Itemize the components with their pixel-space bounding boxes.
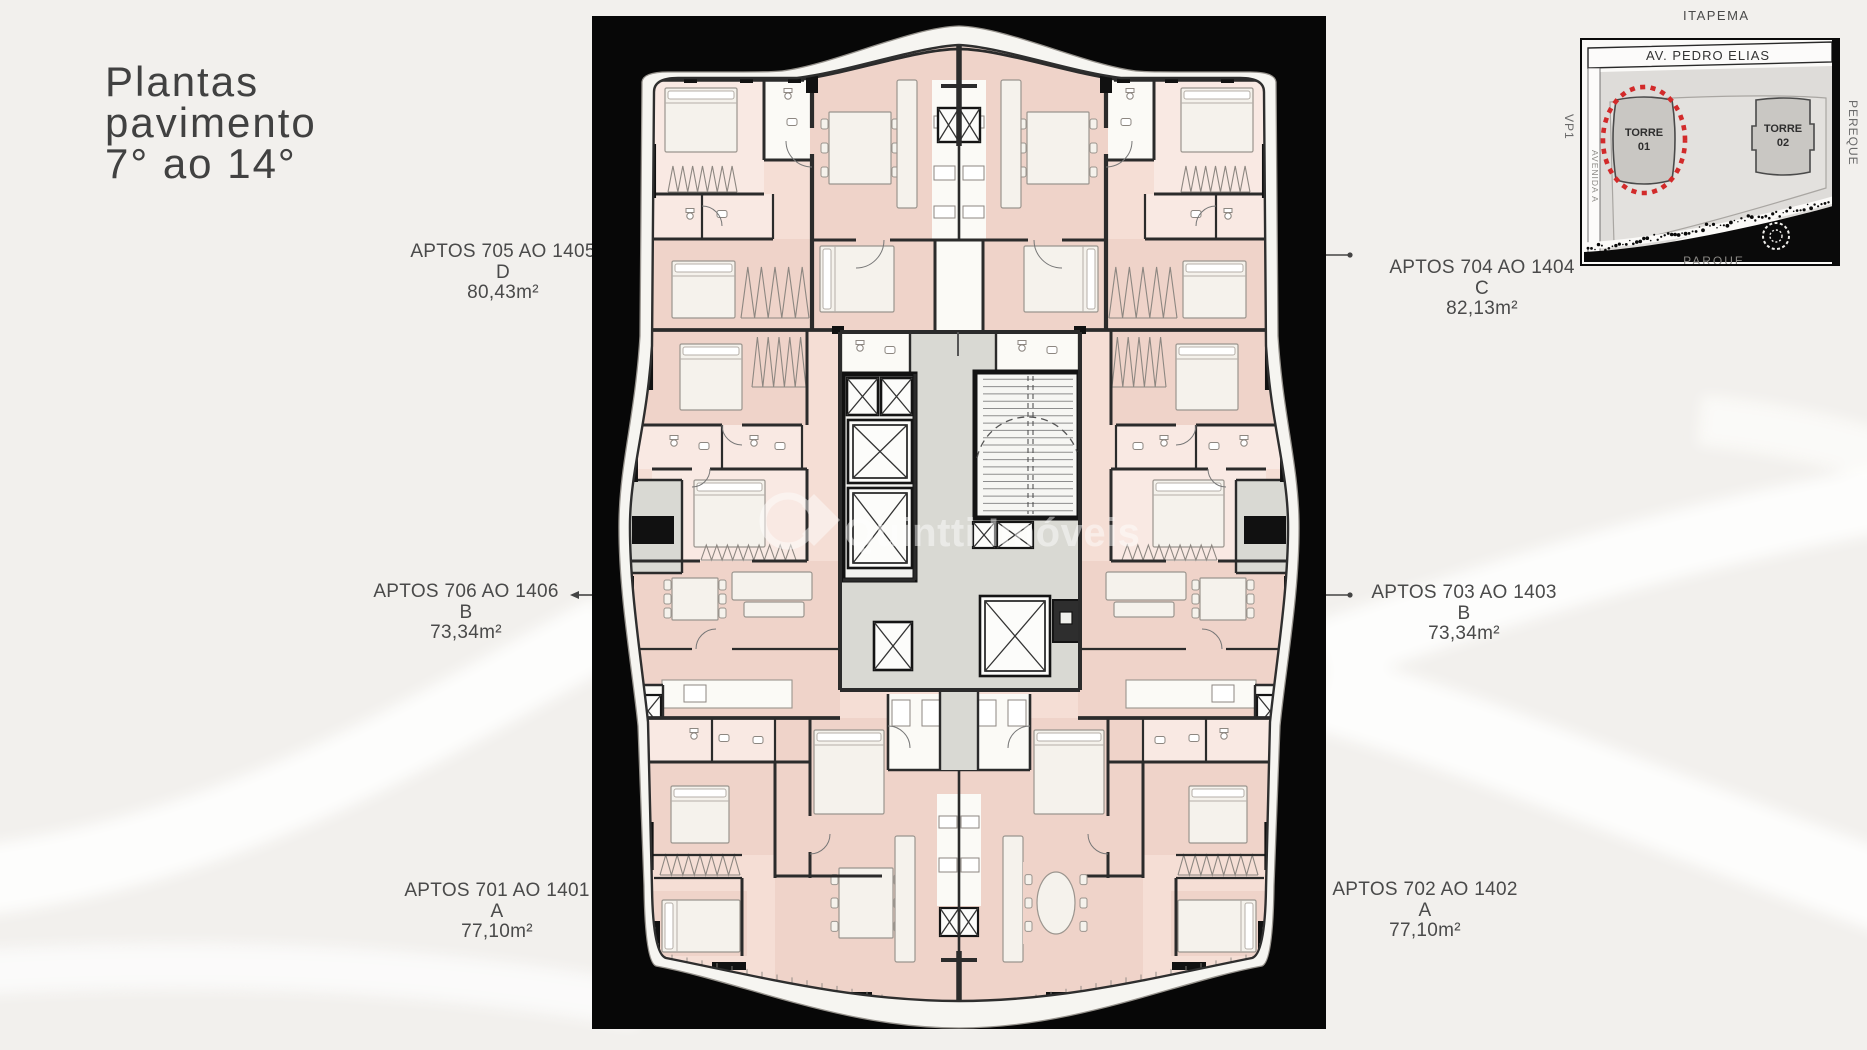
svg-text:AVENIDA A: AVENIDA A [1590, 150, 1600, 203]
svg-text:TORRE: TORRE [1625, 127, 1663, 139]
svg-text:TORRE: TORRE [1764, 123, 1802, 135]
svg-text:02: 02 [1777, 137, 1789, 149]
svg-text:01: 01 [1638, 141, 1650, 153]
svg-text:Quintti Imóveis: Quintti Imóveis [844, 511, 1140, 555]
svg-text:AV. PEDRO ELIAS: AV. PEDRO ELIAS [1646, 48, 1770, 63]
